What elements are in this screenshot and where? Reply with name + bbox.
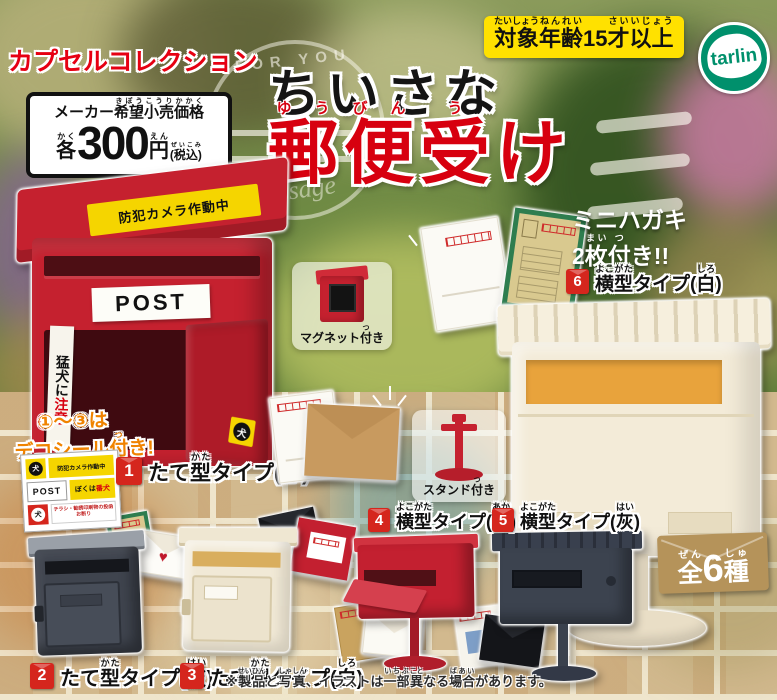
sticker-sheet: 犬 防犯カメラ作動中 POST ぼくは番犬 犬 チラシ・勧誘印刷物の投函お断り <box>20 449 122 532</box>
magnet-callout: マグネット付つき <box>292 262 392 350</box>
sticker-row: POST ぼくは番犬 <box>26 478 115 503</box>
heart-icon: ♥ <box>157 548 168 566</box>
address-label <box>306 532 346 564</box>
mini-stand <box>430 414 488 480</box>
envelope-kraft <box>304 404 400 481</box>
address-boxes <box>541 223 576 236</box>
mini-mailbox-back <box>316 266 370 324</box>
set-count-badge: 全ぜん6種しゅ <box>657 532 769 594</box>
message-pane <box>520 246 563 275</box>
flap-recess <box>668 512 732 534</box>
sparkle-icon <box>374 384 408 410</box>
magnet-callout-label: マグネット付つき <box>292 325 392 346</box>
dog-icon: 犬 <box>31 507 46 522</box>
door-handle <box>182 599 191 615</box>
sticker-row: 犬 チラシ・勧誘印刷物の投函お断り <box>28 501 117 526</box>
mail-slot-band <box>526 360 722 404</box>
latch-knob <box>606 576 616 586</box>
post-label: POST <box>91 284 210 322</box>
item-number-badge: 4 <box>368 508 390 532</box>
sparkle-stroke <box>389 386 391 400</box>
price-amount: 300 <box>77 123 148 163</box>
mini-postcards-note: ミニハガキ 2枚まい付つき!! <box>572 208 687 269</box>
sparkle-stroke <box>397 395 407 406</box>
mail-slot-band <box>192 551 280 568</box>
sparkle-stroke <box>408 235 418 246</box>
item-label-5: 5 横型よこがたタイプ(灰はい) <box>492 502 640 534</box>
mail-illustration-cluster-1 <box>270 388 410 498</box>
item-number-badge: 6 <box>566 269 589 294</box>
item-label-text: 横型よこがたタイプ(灰はい) <box>520 502 640 534</box>
door-plate <box>60 594 102 607</box>
mail-slot <box>44 256 260 276</box>
item-number-badge: 5 <box>492 508 514 532</box>
item-label-6: 6 横型よこがたタイプ(白しろ) <box>566 264 722 296</box>
magnet-square <box>329 284 356 312</box>
postcard-line <box>442 286 500 297</box>
age-notice: 対象たいしょう年齢ねんれい15才さい以上いじょう <box>484 16 684 58</box>
mailbox-door <box>191 575 272 642</box>
watchdog-sticker: ぼくは番犬 <box>69 478 115 500</box>
sparkle-stroke <box>372 395 382 406</box>
name-plate <box>204 585 238 600</box>
brand-logo: カプセルコレクション <box>8 42 258 78</box>
dog-icon: 犬 <box>28 461 43 476</box>
stand-pole <box>455 420 463 474</box>
dog-sticker: 犬 <box>228 416 256 447</box>
item-label-text: 横型よこがたタイプ(白しろ) <box>595 264 722 296</box>
tarlin-logo-text: tarlin <box>698 22 771 95</box>
title-main: 郵ゆう便びん受うけ <box>268 100 572 188</box>
item-number-badge: 1 <box>116 457 142 485</box>
camera-sticker-small: 防犯カメラ作動中 <box>48 455 114 478</box>
mailbox-photo-white-vertical <box>175 525 303 657</box>
mail-slot <box>512 570 582 588</box>
mailbox-photo-red-horizontal <box>348 530 484 672</box>
dog-icon: 犬 <box>232 421 251 442</box>
watchdog-text-black: ぼくは <box>75 484 96 495</box>
sticker-row: 犬 防犯カメラ作動中 <box>25 455 114 480</box>
door-handle <box>34 606 44 622</box>
mailbox-photo-gray-horizontal <box>488 528 646 684</box>
no-flyer-sticker: チラシ・勧誘印刷物の投函お断り <box>51 501 117 524</box>
post-sticker: POST <box>26 480 67 502</box>
set-count-text: 全ぜん6種しゅ <box>677 548 749 589</box>
product-poster: FOR YOU message カプセルコレクション メーカー希望きぼう小 <box>0 0 777 700</box>
watchdog-text-red: 番犬 <box>96 483 111 494</box>
mailbox-door-open: 犬 <box>186 319 268 468</box>
mailbox-photo-gray-vertical <box>26 530 154 660</box>
address-boxes <box>445 231 492 247</box>
tarlin-logo: tarlin <box>698 22 770 94</box>
beware-black: 猛犬に <box>54 355 71 398</box>
disclaimer: ※製品せいひんと写真しゃしん、イラストは一部いちぶ異ことなる場合ばあいがあります… <box>0 668 777 690</box>
flap-seam <box>518 414 754 417</box>
dog-sticker-yellow: 犬 <box>25 458 46 479</box>
dog-sticker-red: 犬 <box>28 504 49 525</box>
price-amount-row: 各かく 300 円えん (税込)ぜいこみ <box>36 123 222 163</box>
stamp-box <box>521 219 538 239</box>
mini-postcards-line1: ミニハガキ <box>572 208 687 233</box>
mailbox-door <box>44 581 122 648</box>
